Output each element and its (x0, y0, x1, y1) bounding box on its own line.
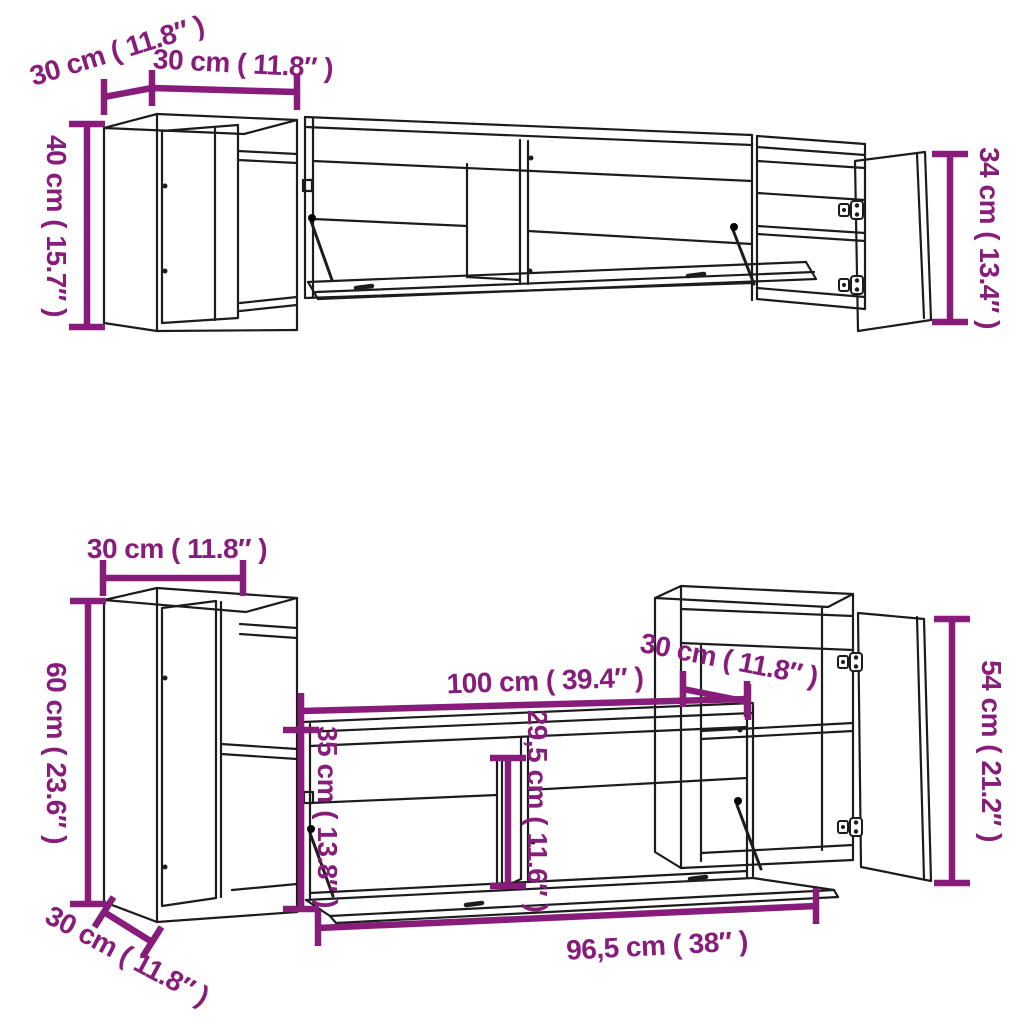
dim-label-tv-inner-height: 35 cm ( 13.8″ ) (311, 726, 343, 908)
bottom-left-cabinet (104, 588, 297, 922)
top-tv-cabinet (303, 117, 816, 299)
dim-label-bottom-right-height: 54 cm ( 21.2″ ) (975, 660, 1007, 842)
dim-line-bottom-right-height (934, 619, 970, 883)
dim-label-bottom-left-height: 60 cm ( 23.6″ ) (40, 662, 72, 844)
dim-line-bottom-left-height (70, 601, 106, 904)
dim-line-bottom-width (103, 560, 243, 596)
hinge (839, 276, 863, 294)
open-flap-door (308, 262, 806, 282)
hinge (838, 653, 862, 671)
hinge (839, 201, 863, 219)
dim-line-top-right-height (932, 154, 968, 322)
hinge (838, 818, 862, 836)
furniture-dimension-diagram: 30 cm ( 11.8″ ) 30 cm ( 11.8″ ) 40 cm ( … (0, 0, 1024, 1024)
dim-label-top-right-height: 34 cm ( 13.4″ ) (973, 147, 1005, 329)
top-right-cabinet (752, 135, 931, 331)
top-left-cabinet (104, 114, 297, 331)
open-door (162, 601, 216, 906)
open-flap-door (330, 890, 834, 916)
dim-line-top-depth (104, 70, 152, 115)
dim-line-top-left-height (69, 124, 105, 327)
dim-label-top-left-height: 40 cm ( 15.7″ ) (40, 135, 72, 317)
diagram-canvas (0, 0, 1024, 1024)
open-door (855, 152, 931, 331)
bottom-right-cabinet (655, 586, 931, 881)
dim-label-opening-height: 29,5 cm ( 11.6″ ) (521, 710, 553, 913)
open-door (162, 125, 238, 323)
dim-label-bottom-width: 30 cm ( 11.8″ ) (87, 533, 267, 565)
flap-stay-arm (311, 221, 332, 280)
flap-stay-arm (737, 805, 761, 869)
